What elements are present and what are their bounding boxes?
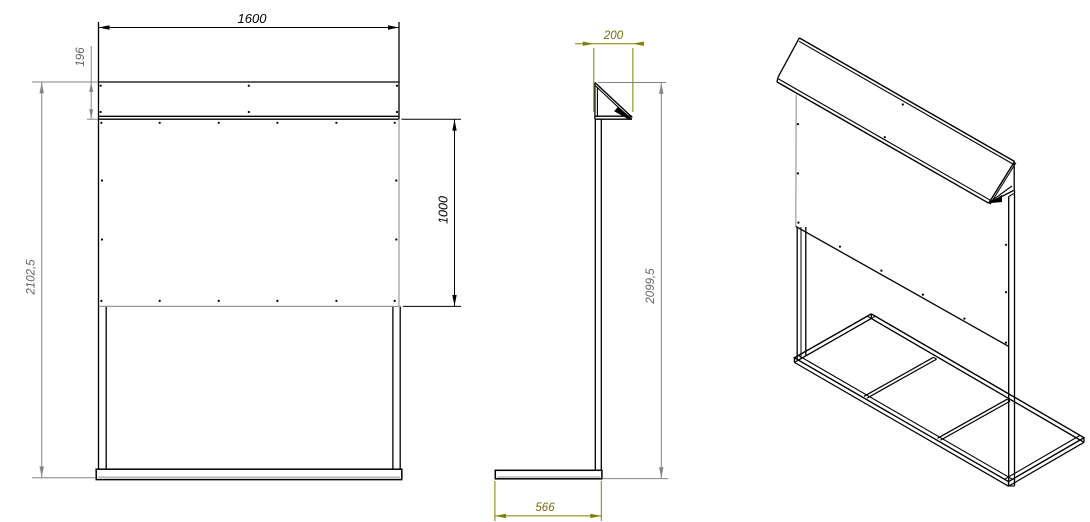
svg-text:1600: 1600 — [238, 11, 268, 26]
svg-text:566: 566 — [535, 502, 555, 514]
svg-text:200: 200 — [603, 30, 624, 42]
svg-text:196: 196 — [75, 47, 87, 67]
svg-text:2099,5: 2099,5 — [645, 268, 657, 305]
svg-text:2102,5: 2102,5 — [26, 259, 38, 296]
svg-text:1000: 1000 — [437, 196, 451, 224]
